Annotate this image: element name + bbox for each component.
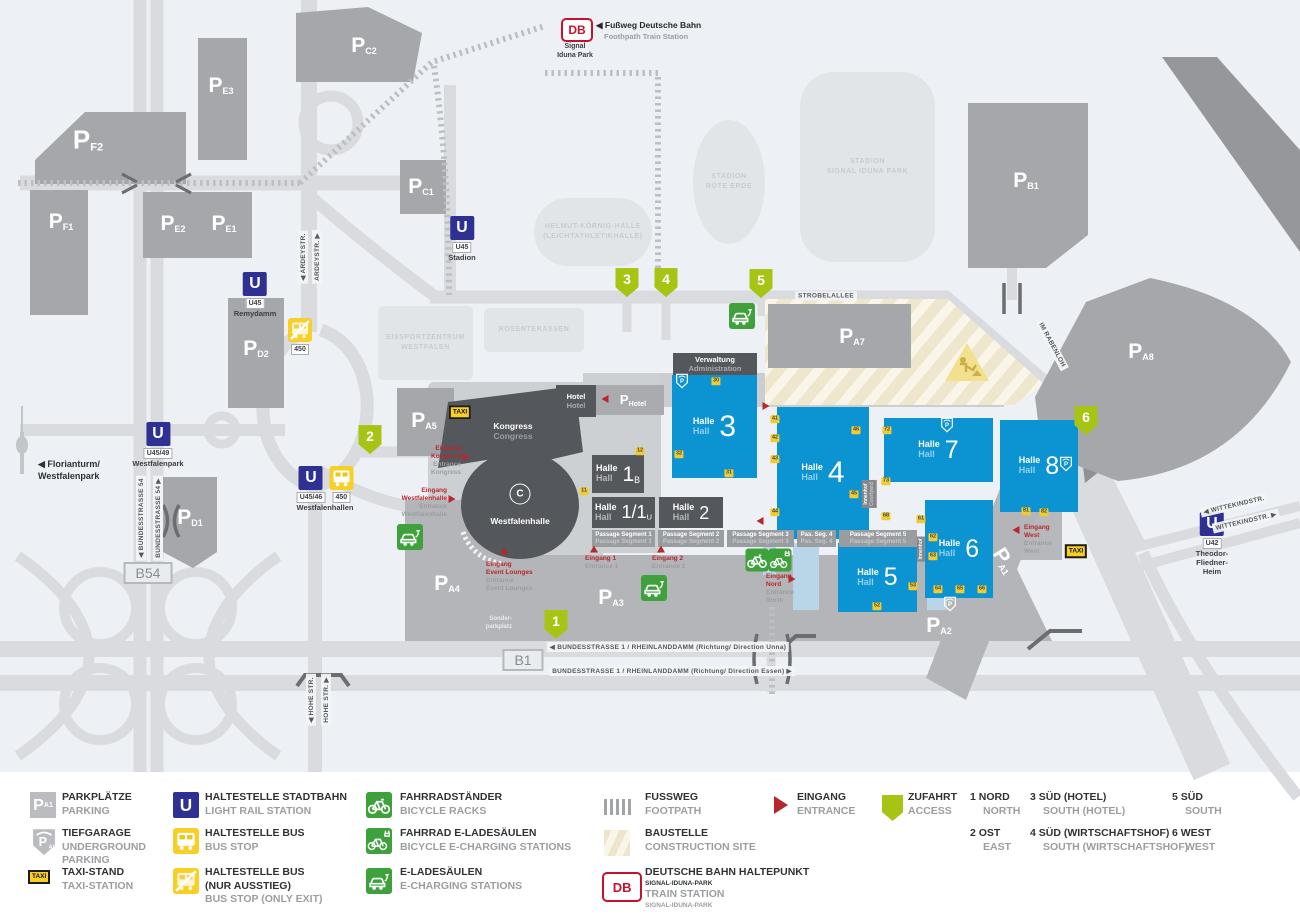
- map-base-graphics: [0, 0, 1300, 920]
- westfalenhallen-site-map: PF2PF1PE3PE2PE1PC2PC1PD2PD1PA5PA4PA3PA2P…: [0, 0, 1300, 920]
